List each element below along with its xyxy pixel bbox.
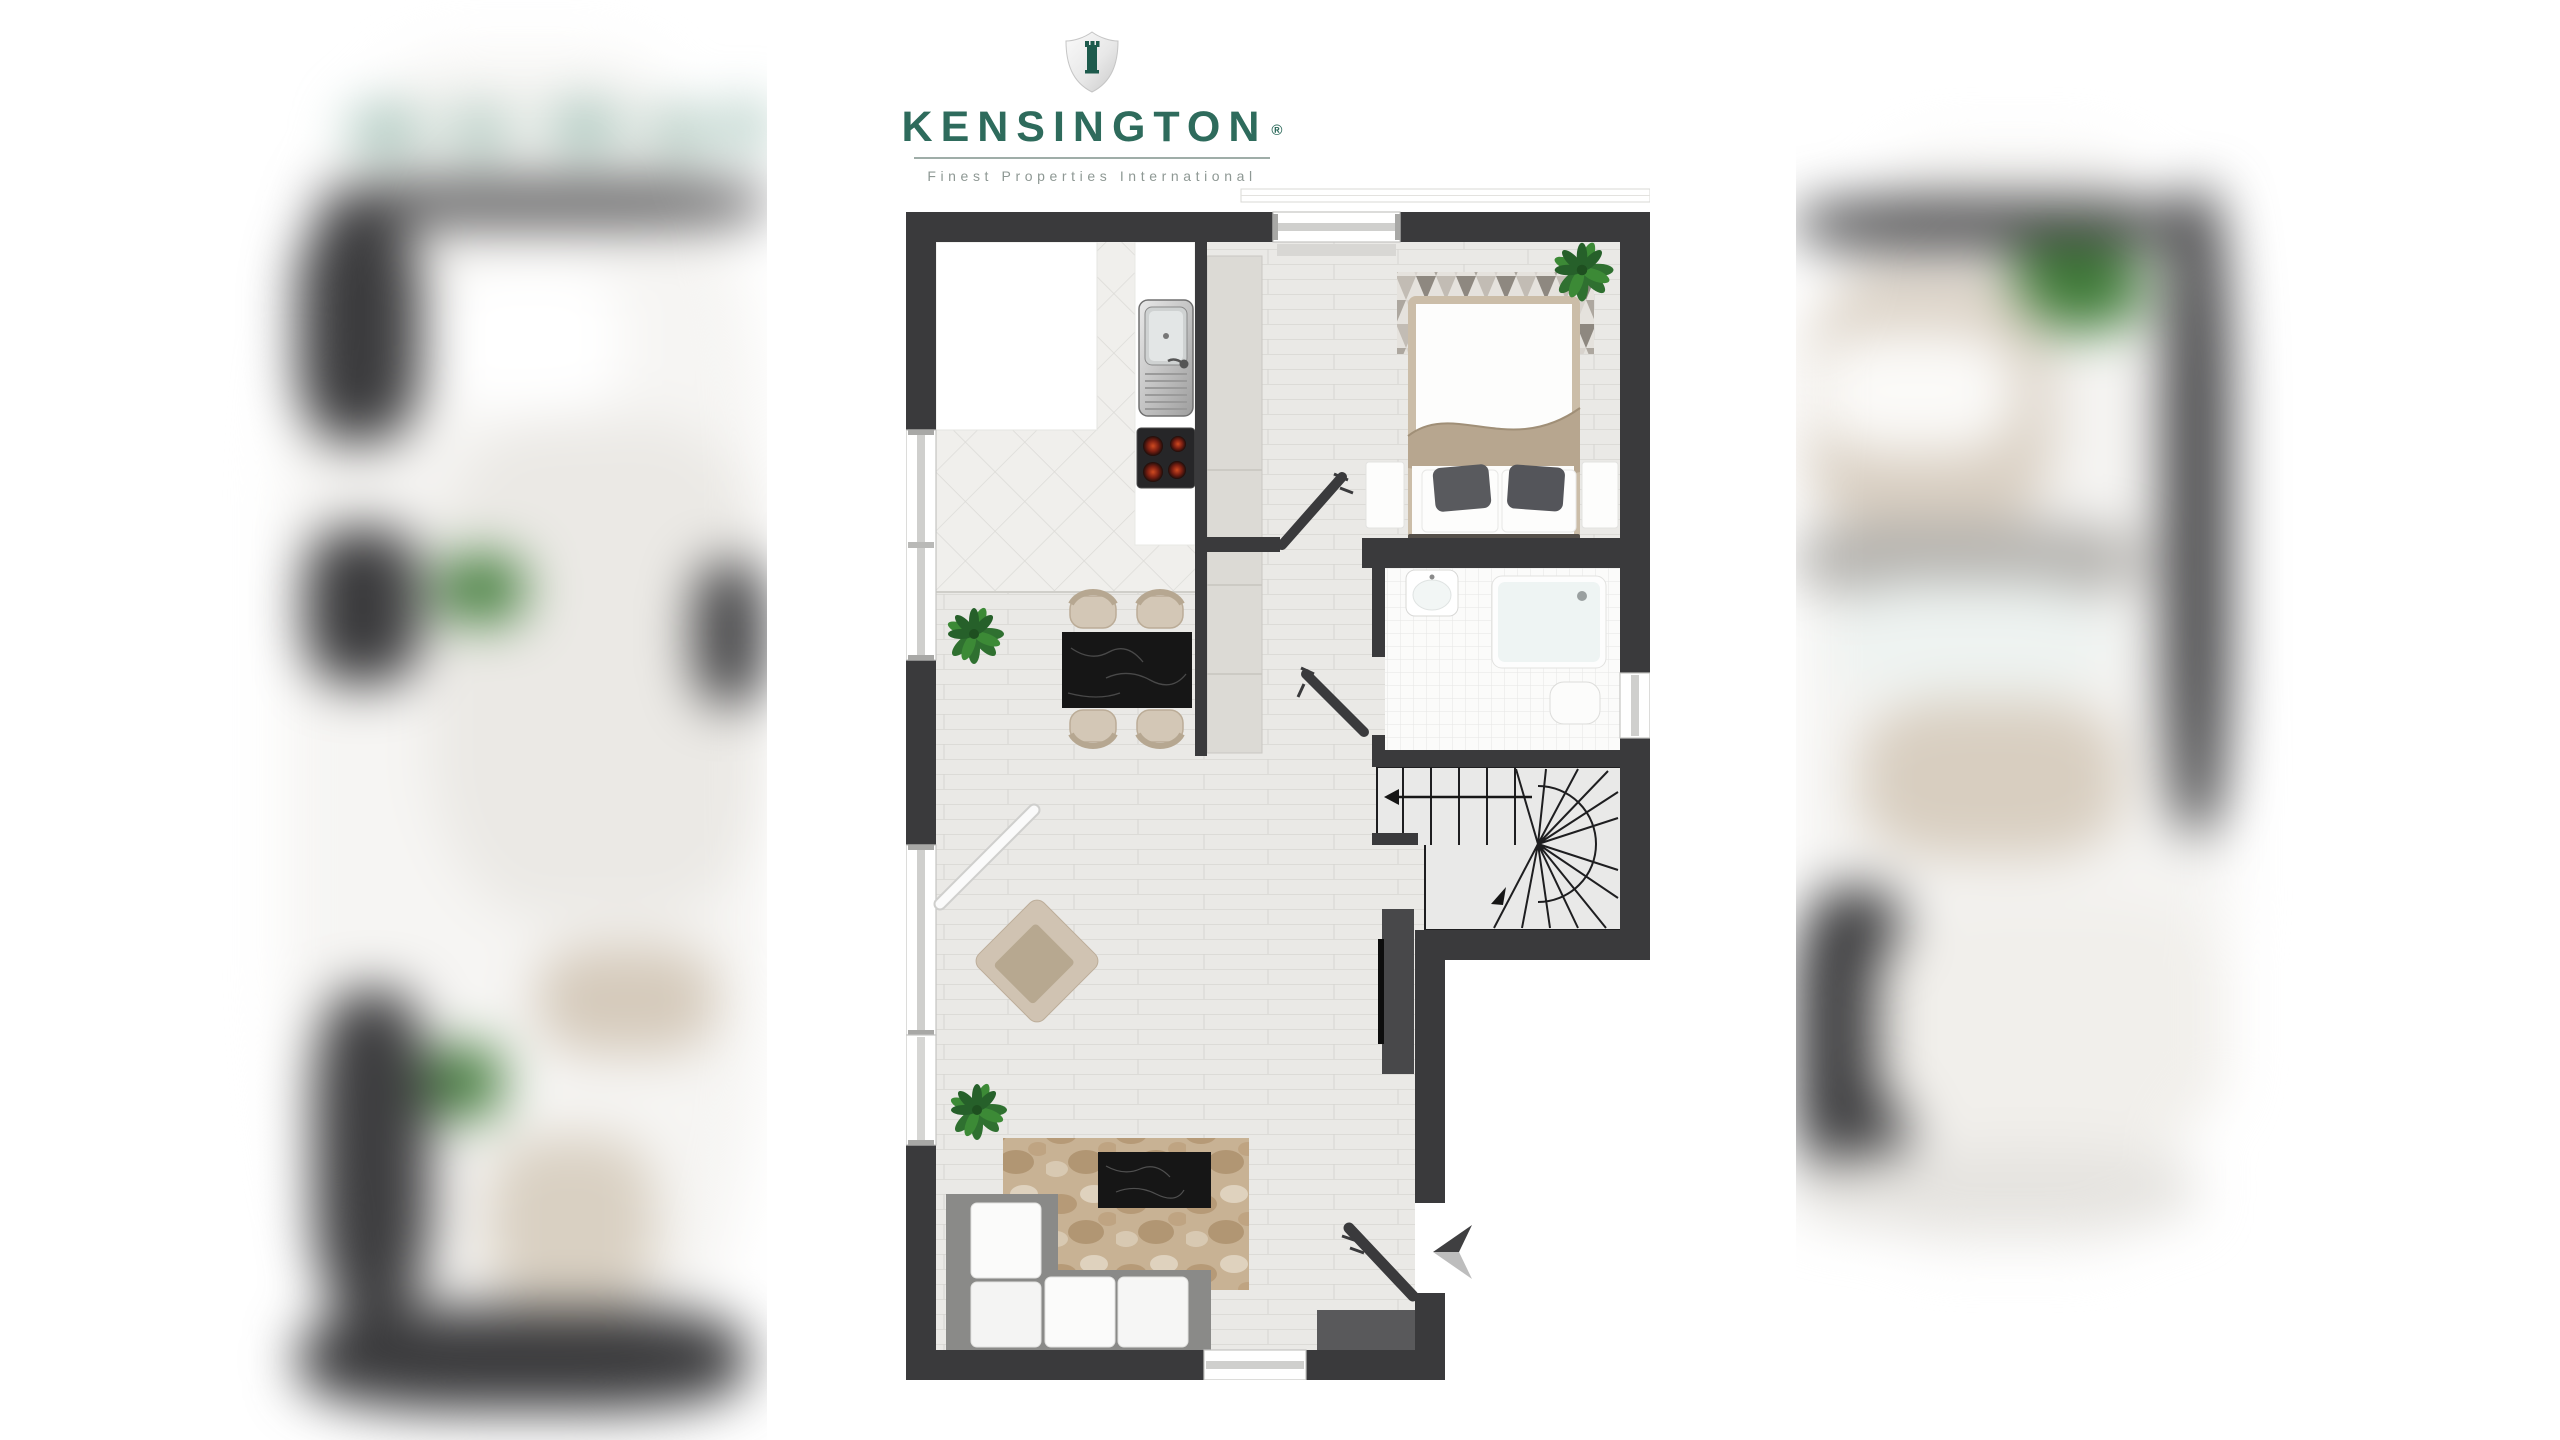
shower [1492, 576, 1606, 668]
sofa-cushion [1045, 1277, 1115, 1347]
tv-screen [1378, 939, 1384, 1044]
toilet [1550, 682, 1600, 724]
kitchen-hob [1137, 428, 1195, 488]
entry-cabinet [1317, 1310, 1415, 1352]
window [1620, 673, 1650, 738]
washbasin [1406, 570, 1458, 616]
blur-blob [1830, 580, 2112, 696]
blur-blob [450, 110, 510, 154]
pillow-left [1432, 464, 1492, 513]
floor-plan [906, 186, 1650, 1380]
blur-blob [2164, 190, 2230, 832]
hall-wardrobe [1207, 256, 1262, 753]
tv-sideboard [1378, 909, 1414, 1074]
blur-blob [550, 105, 620, 151]
floorplan-sheet: KENSINGTON® Finest Properties Internatio… [767, 0, 1796, 1440]
blur-blob [650, 110, 710, 154]
logo-tagline: Finest Properties International [885, 168, 1299, 184]
sofa-cushion [971, 1203, 1041, 1278]
pillow-right [1507, 464, 1566, 512]
nightstand-left [1366, 462, 1404, 528]
page-canvas: KENSINGTON® Finest Properties Internatio… [0, 0, 2560, 1440]
dining-chair [1070, 710, 1116, 746]
nightstand-right [1582, 462, 1618, 528]
blur-blob [314, 990, 430, 1318]
blur-blob [298, 214, 420, 442]
blur-blob [1816, 330, 2016, 452]
blur-blob [300, 1308, 746, 1410]
kitchen-sink [1139, 300, 1193, 416]
logo-rule [914, 157, 1270, 159]
brand-row: KENSINGTON® [885, 106, 1299, 149]
blur-blob [305, 528, 421, 684]
left-blur-content [0, 0, 767, 1440]
right-blur-content [1796, 0, 2560, 1440]
blur-blob [725, 104, 767, 150]
kensington-logo: KENSINGTON® Finest Properties Internatio… [885, 30, 1299, 184]
blur-blob [1796, 198, 2188, 250]
sofa-cushion [971, 1282, 1041, 1347]
brand-name: KENSINGTON [902, 103, 1268, 151]
blur-blob [350, 108, 420, 154]
registered-mark: ® [1271, 122, 1282, 139]
blur-blob [1796, 1150, 2196, 1230]
blur-blob [430, 1046, 502, 1118]
blur-blob [440, 264, 622, 414]
kensington-shield-icon [1064, 30, 1120, 94]
window [906, 430, 936, 660]
blur-blob [1876, 900, 2226, 1150]
blur-blob [488, 1136, 656, 1310]
window [1204, 1350, 1306, 1380]
terrace-railing [1241, 189, 1650, 202]
blur-blob [694, 562, 767, 704]
coffee-table [1098, 1152, 1211, 1208]
blur-blob [1860, 700, 2122, 858]
dining-chair [1137, 710, 1183, 746]
kitchen-counter-left [936, 242, 1097, 430]
entrance-arrow-icon [1433, 1225, 1472, 1279]
window [906, 1035, 936, 1145]
window [1273, 212, 1400, 256]
right-blurred-floorplan-preview [1796, 0, 2560, 1440]
window-sill [1277, 244, 1396, 256]
dining-chair [1137, 592, 1183, 628]
window [906, 845, 936, 1035]
dining-chair [1070, 592, 1116, 628]
blur-blob [538, 946, 716, 1054]
left-blurred-floorplan-preview [0, 0, 767, 1440]
dining-table [1062, 632, 1192, 708]
sofa-cushion [1118, 1277, 1188, 1347]
blur-blob [438, 556, 524, 622]
